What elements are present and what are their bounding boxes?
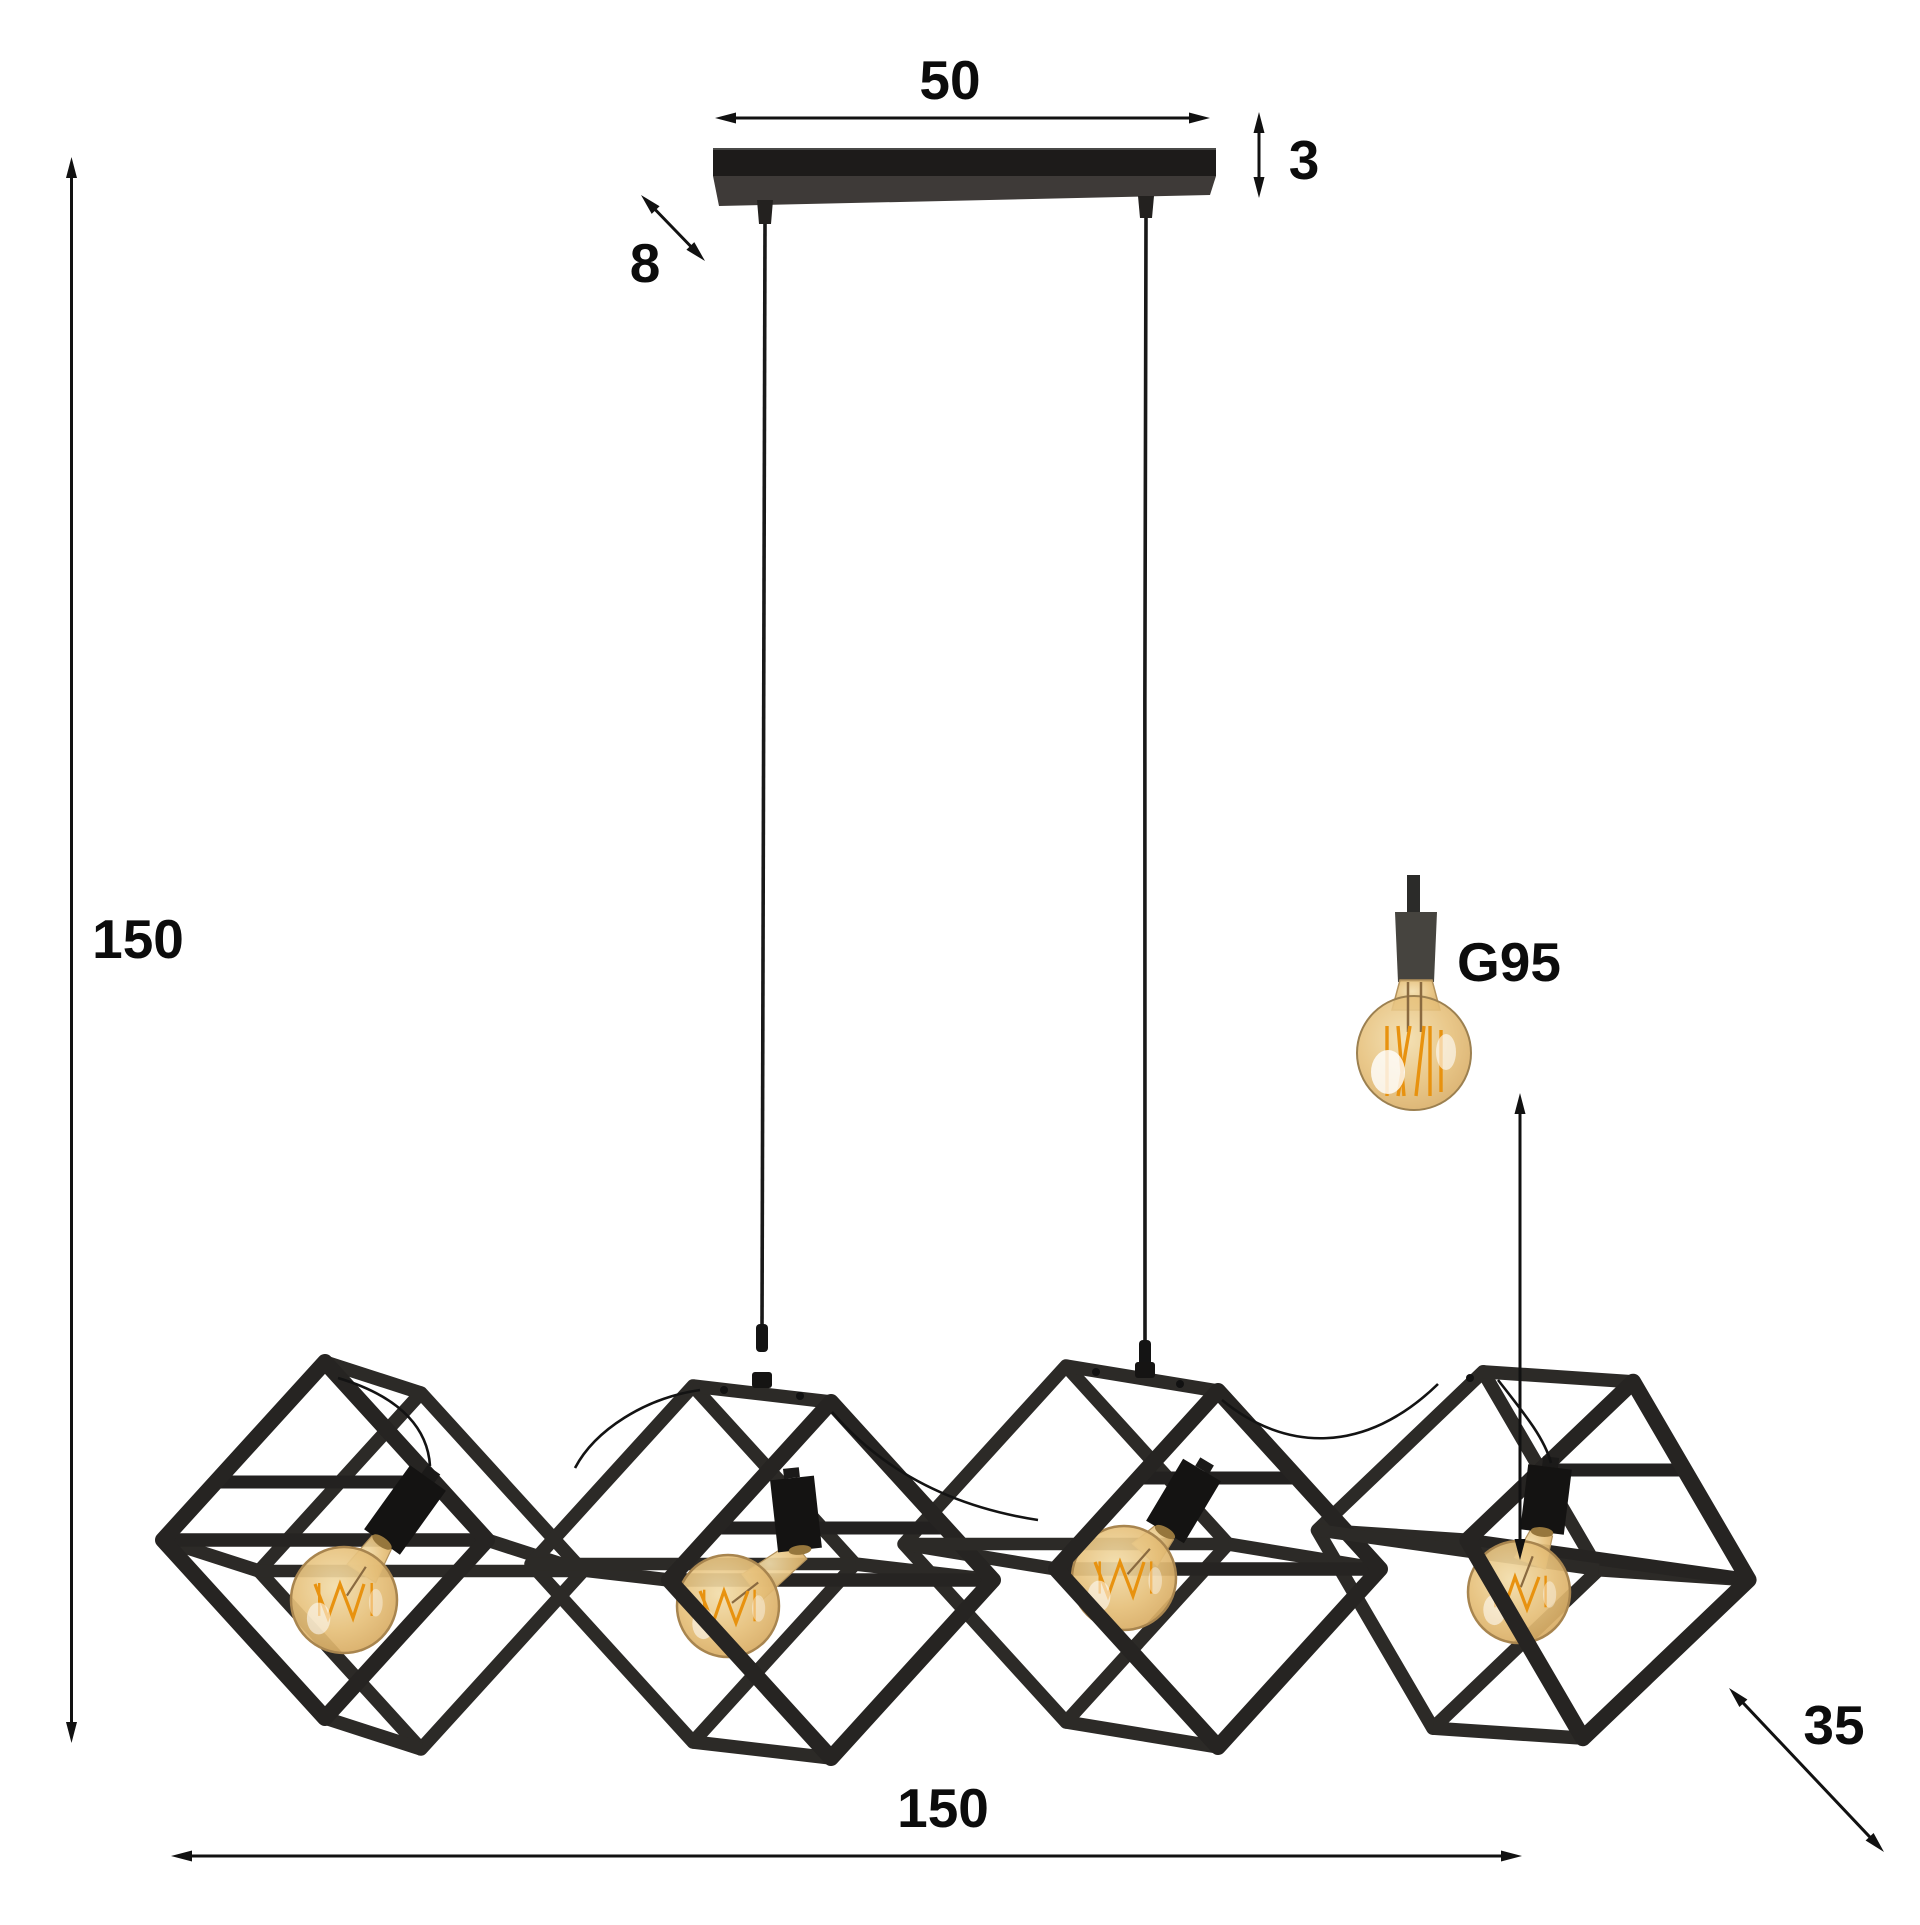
svg-text:150: 150 — [897, 1777, 989, 1839]
svg-text:150: 150 — [92, 908, 184, 970]
svg-text:35: 35 — [1803, 1694, 1864, 1756]
svg-text:8: 8 — [630, 232, 661, 294]
svg-text:50: 50 — [919, 49, 980, 111]
svg-text:3: 3 — [1289, 129, 1320, 191]
svg-text:G95: G95 — [1457, 931, 1561, 993]
